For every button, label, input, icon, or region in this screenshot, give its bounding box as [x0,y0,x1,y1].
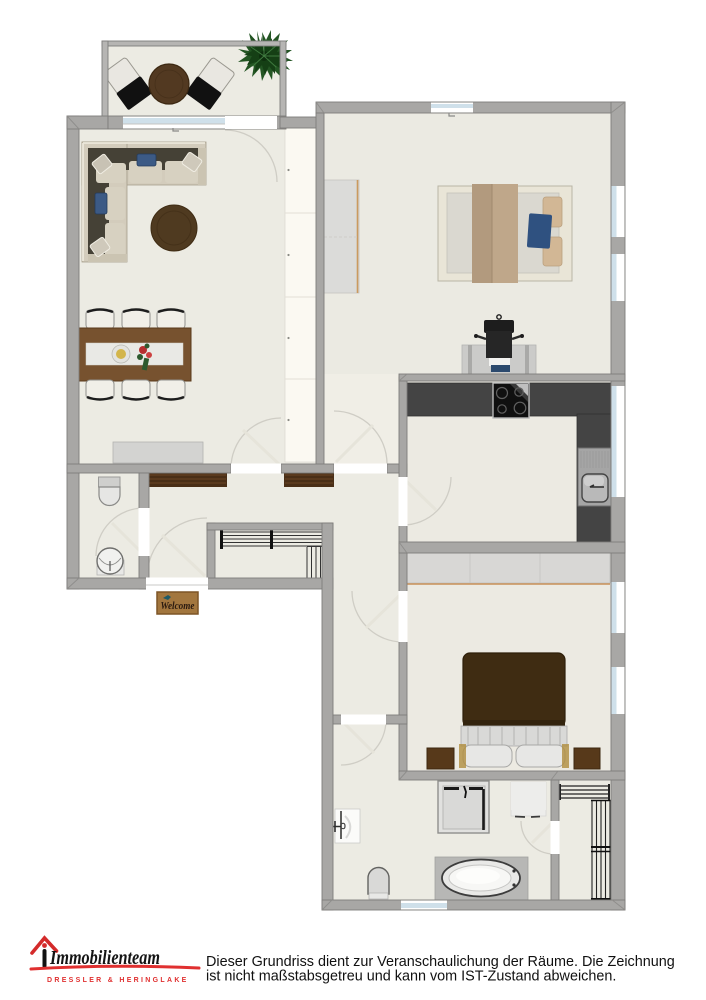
svg-text:DRESSLER & HERINGLAKE: DRESSLER & HERINGLAKE [47,977,189,984]
svg-text:Welcome: Welcome [161,601,196,612]
svg-text:ist nicht maßstabsgetreu und k: ist nicht maßstabsgetreu und kann vom IS… [206,969,616,985]
